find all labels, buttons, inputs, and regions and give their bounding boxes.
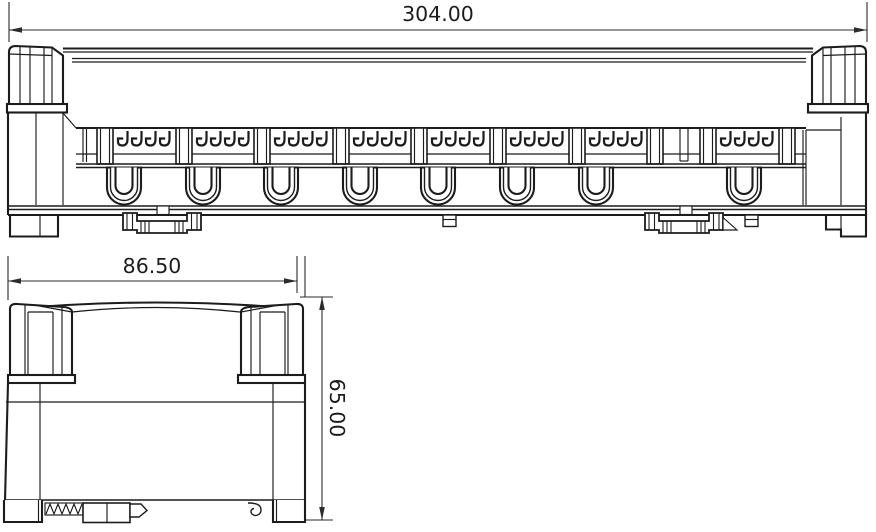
din-rail-spring <box>45 503 83 515</box>
side-clip-left <box>8 304 75 383</box>
end-clip-right <box>808 46 868 113</box>
technical-drawing: 304.00 <box>0 0 876 532</box>
din-rail-hook <box>248 503 261 515</box>
mounting-feet <box>10 206 866 237</box>
front-left-end-panel <box>8 112 76 215</box>
terminal-strip <box>76 128 806 164</box>
side-height-dimension-label: 65.00 <box>325 379 349 438</box>
end-clip-left <box>7 46 67 113</box>
side-width-dimension-label: 86.50 <box>123 254 182 278</box>
drawing-svg: 304.00 <box>0 0 876 532</box>
front-lid <box>63 49 813 63</box>
side-view: 86.50 65.00 <box>4 254 349 523</box>
strip-divider <box>680 128 688 161</box>
front-width-dimension: 304.00 <box>9 2 867 42</box>
side-bottom <box>4 500 305 523</box>
front-right-end-panel <box>803 112 866 215</box>
front-width-dimension-label: 304.00 <box>402 2 474 26</box>
side-height-dimension: 65.00 <box>277 256 349 520</box>
terminal-hooks <box>118 131 773 146</box>
side-clip-right <box>238 304 305 383</box>
cable-clamps <box>107 168 761 205</box>
front-view: 304.00 <box>7 2 868 237</box>
side-width-dimension: 86.50 <box>8 254 297 300</box>
din-rail-latch <box>83 503 147 523</box>
side-body <box>5 383 305 500</box>
